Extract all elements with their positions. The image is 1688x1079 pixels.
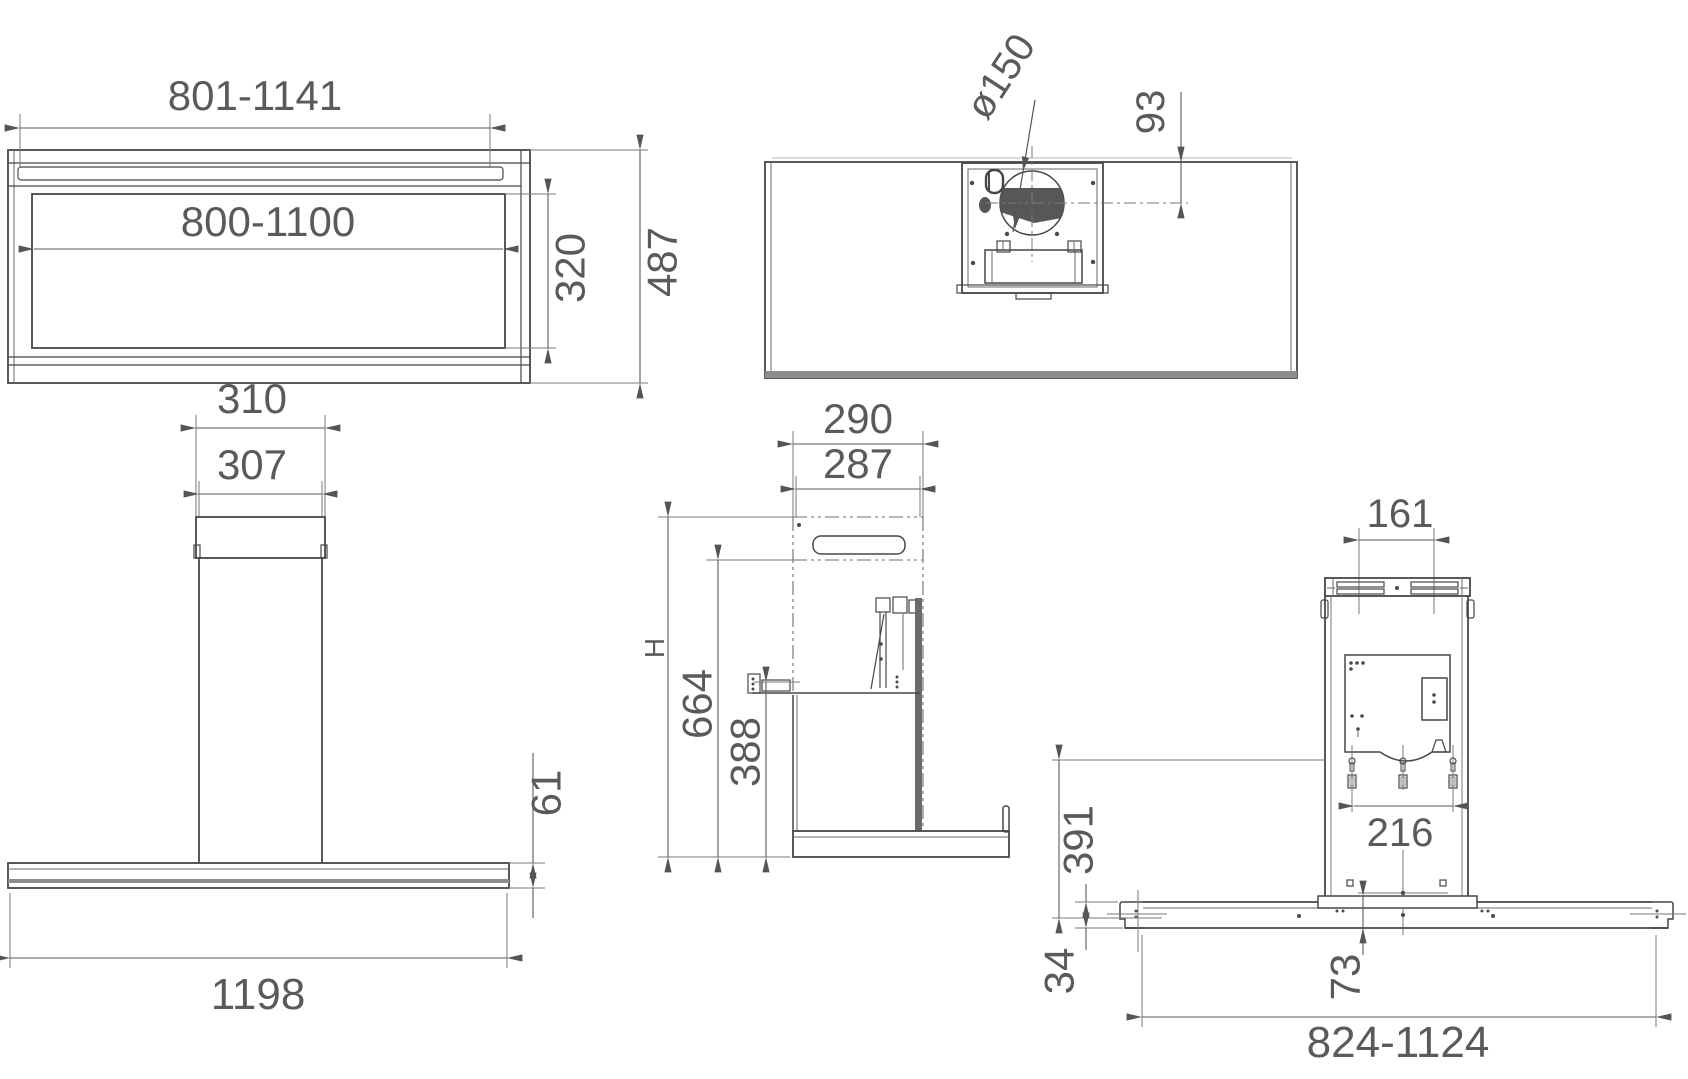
- top-view-ceiling-panel: ø150 93: [765, 26, 1297, 378]
- connector-box: [1422, 678, 1447, 720]
- hood-body-rear: [1107, 890, 1686, 952]
- vent-grille: [1337, 582, 1384, 587]
- dim-glass-width: 800-1100: [181, 198, 355, 245]
- mounting-bracket-side: [871, 597, 918, 689]
- chimney-base-plate: [1318, 896, 1477, 908]
- dim-glass-height: 320: [547, 233, 594, 303]
- hanger-bolts: [1348, 745, 1457, 812]
- dim-chimney-depth-inner: 287: [823, 440, 893, 487]
- vent-slot: [813, 536, 905, 554]
- hood-dimension-drawing: 801-1141 800-1100 320 487: [0, 0, 1688, 1079]
- dim-chimney-top-outer: 310: [217, 375, 287, 422]
- dim-base-width: 824-1124: [1307, 1018, 1490, 1067]
- cable-terminal: [1432, 740, 1446, 752]
- screw-hole: [797, 523, 801, 527]
- body-end-cap-right: [1652, 902, 1673, 928]
- dim-slot-spacing: 161: [1367, 492, 1434, 536]
- technical-drawing-page: 801-1141 800-1100 320 487: [0, 0, 1688, 1079]
- front-view-hood-body: 801-1141 800-1100 320 487: [8, 72, 686, 383]
- dim-center-height: 73: [1322, 954, 1369, 1001]
- body-end-cap-left: [1120, 902, 1143, 928]
- rear-wall-section: [915, 598, 922, 831]
- motor-panel: [1345, 655, 1450, 761]
- blower-bracket: [985, 241, 1082, 283]
- side-view: 290 287: [639, 395, 1009, 857]
- rear-view: 161: [1036, 492, 1686, 1067]
- hood-box-top: [957, 146, 1188, 299]
- dim-chimney-top-inner: 307: [217, 441, 287, 488]
- dim-lower-height: 388: [722, 717, 769, 787]
- dim-duct-diameter: ø150: [958, 26, 1045, 126]
- front-view-full-hood: 310 307 61 1198: [8, 375, 570, 1019]
- led-light-strip: [18, 167, 503, 180]
- dim-total-height: H: [639, 638, 670, 658]
- dim-bracket-height: 391: [1055, 805, 1102, 875]
- dim-edge-height: 34: [1036, 948, 1083, 995]
- chimney-upper-section: [196, 517, 325, 558]
- dim-hood-depth: 487: [639, 227, 686, 297]
- hood-body-side: [748, 674, 1009, 857]
- panel-edge-band: [765, 371, 1297, 378]
- hood-body-front: [8, 863, 509, 888]
- cable-hole: [979, 197, 991, 213]
- dim-body-width: 1198: [211, 970, 306, 1019]
- dim-hood-top-width: 801-1141: [168, 72, 342, 119]
- dim-body-height: 61: [523, 770, 570, 817]
- rear-flange: [1003, 806, 1009, 832]
- chimney-cap-rear: [1325, 578, 1470, 596]
- dim-mid-height: 664: [674, 669, 721, 739]
- chimney-column-rear: [1321, 596, 1474, 902]
- dim-chimney-depth-outer: 290: [823, 395, 893, 442]
- dim-keyhole-spacing: 216: [1367, 811, 1434, 855]
- dim-duct-offset: 93: [1129, 90, 1173, 135]
